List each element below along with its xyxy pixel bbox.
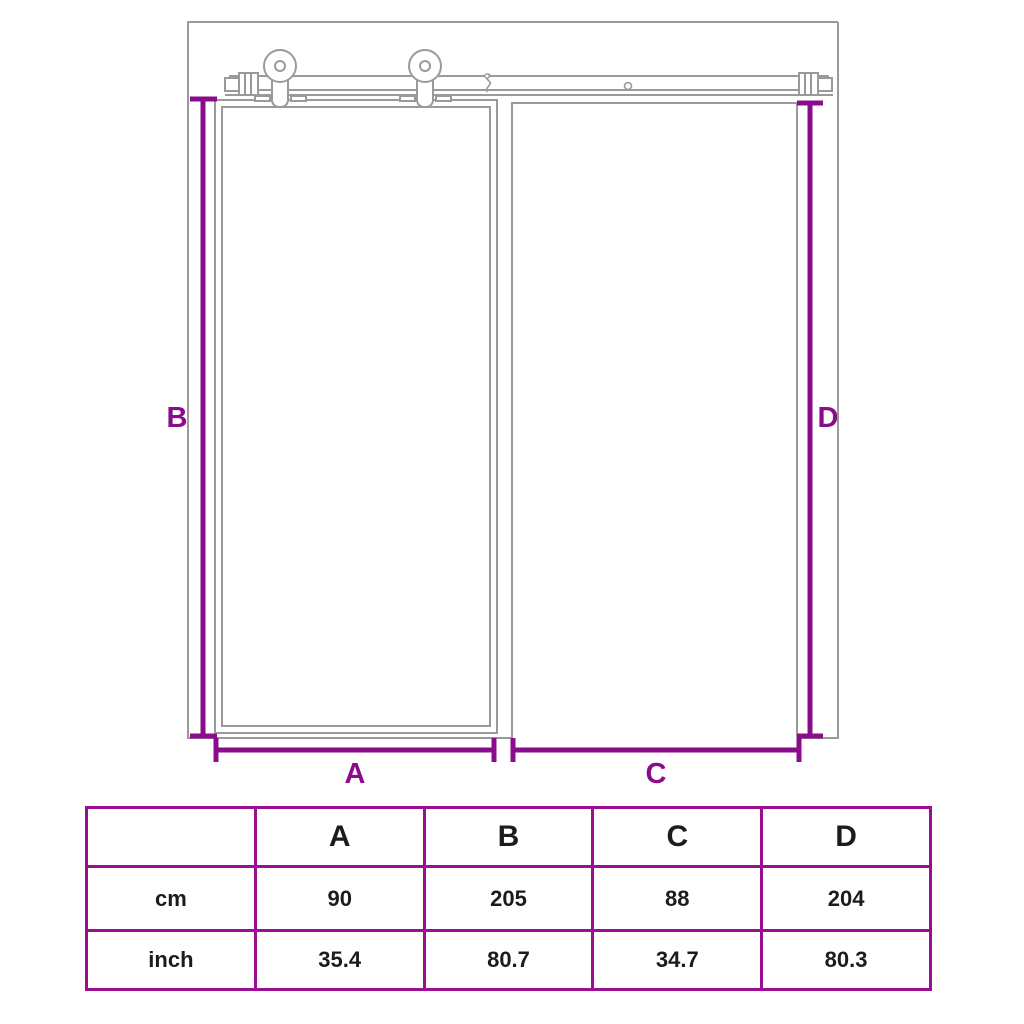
rail-screw-hole-icon: [625, 83, 632, 90]
value-inch-c: 34.7: [593, 931, 762, 990]
rail: [230, 76, 828, 90]
table-header-c: C: [593, 808, 762, 867]
value-cm-c: 88: [593, 867, 762, 931]
value-cm-b: 205: [424, 867, 593, 931]
table-corner-cell: [87, 808, 256, 867]
table-header-b: B: [424, 808, 593, 867]
dimension-label-c: C: [646, 758, 667, 790]
dimension-label-b: B: [167, 402, 188, 434]
sliding-door-diagram: B D A C: [0, 0, 1024, 800]
dimension-line-b: [190, 99, 217, 736]
value-cm-a: 90: [255, 867, 424, 931]
dimensions-table: A B C D cm 90 205 88 204 inch 35.4 80.7 …: [85, 806, 932, 991]
row-label-inch: inch: [87, 931, 256, 990]
table-row-inch: inch 35.4 80.7 34.7 80.3: [87, 931, 931, 990]
page: B D A C A B C D: [0, 0, 1024, 1024]
table-row-cm: cm 90 205 88 204: [87, 867, 931, 931]
value-inch-a: 35.4: [255, 931, 424, 990]
table-header-a: A: [255, 808, 424, 867]
table-header-d: D: [762, 808, 931, 867]
dimension-label-d: D: [818, 402, 839, 434]
value-inch-d: 80.3: [762, 931, 931, 990]
door-panel: [215, 100, 497, 733]
dimension-label-a: A: [345, 758, 366, 790]
value-inch-b: 80.7: [424, 931, 593, 990]
table-header-row: A B C D: [87, 808, 931, 867]
doorway-opening: [512, 103, 797, 738]
roller-hub-right: [420, 61, 430, 71]
row-label-cm: cm: [87, 867, 256, 931]
value-cm-d: 204: [762, 867, 931, 931]
roller-hub-left: [275, 61, 285, 71]
